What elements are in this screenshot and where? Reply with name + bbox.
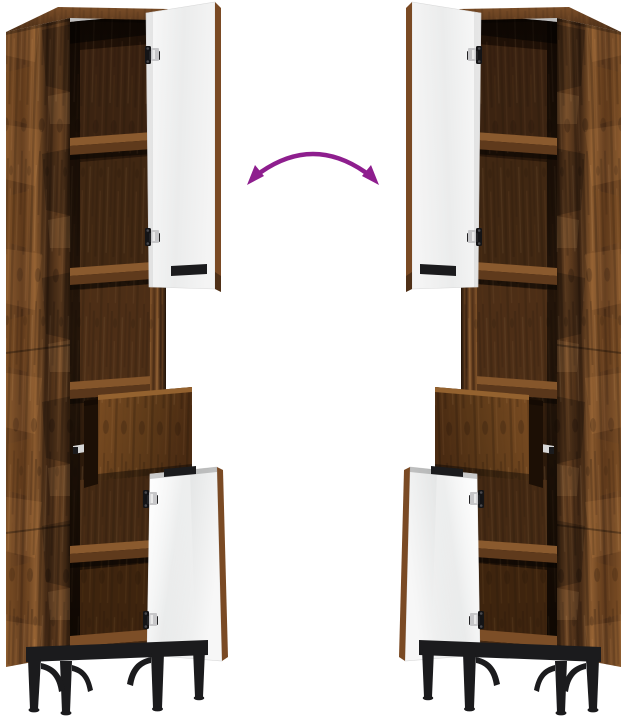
drawer-slide-bracket (73, 447, 78, 454)
leg-brace (127, 657, 151, 686)
product-photo-stage (0, 0, 627, 720)
arrow-head-right (362, 165, 379, 185)
left-cabinet (6, 2, 228, 715)
leg-brace (72, 665, 93, 692)
drawer-front (98, 387, 192, 481)
metal-legs (26, 640, 208, 715)
leg (28, 659, 41, 709)
arrow-head-left (247, 165, 264, 185)
reversible-direction-arrow-icon (247, 154, 379, 185)
upper-door-edge (215, 2, 221, 292)
drawer-side (84, 397, 98, 488)
arrow-arc (261, 154, 365, 172)
leg (151, 653, 164, 708)
upper-door-open (145, 2, 221, 292)
cabinet-side-panel (6, 18, 70, 667)
upper-door-panel (146, 2, 215, 289)
right-cabinet (399, 2, 621, 715)
leg (193, 649, 205, 697)
upper-door-handle (171, 264, 207, 276)
product-image (0, 0, 627, 720)
lower-door-open (143, 466, 228, 661)
